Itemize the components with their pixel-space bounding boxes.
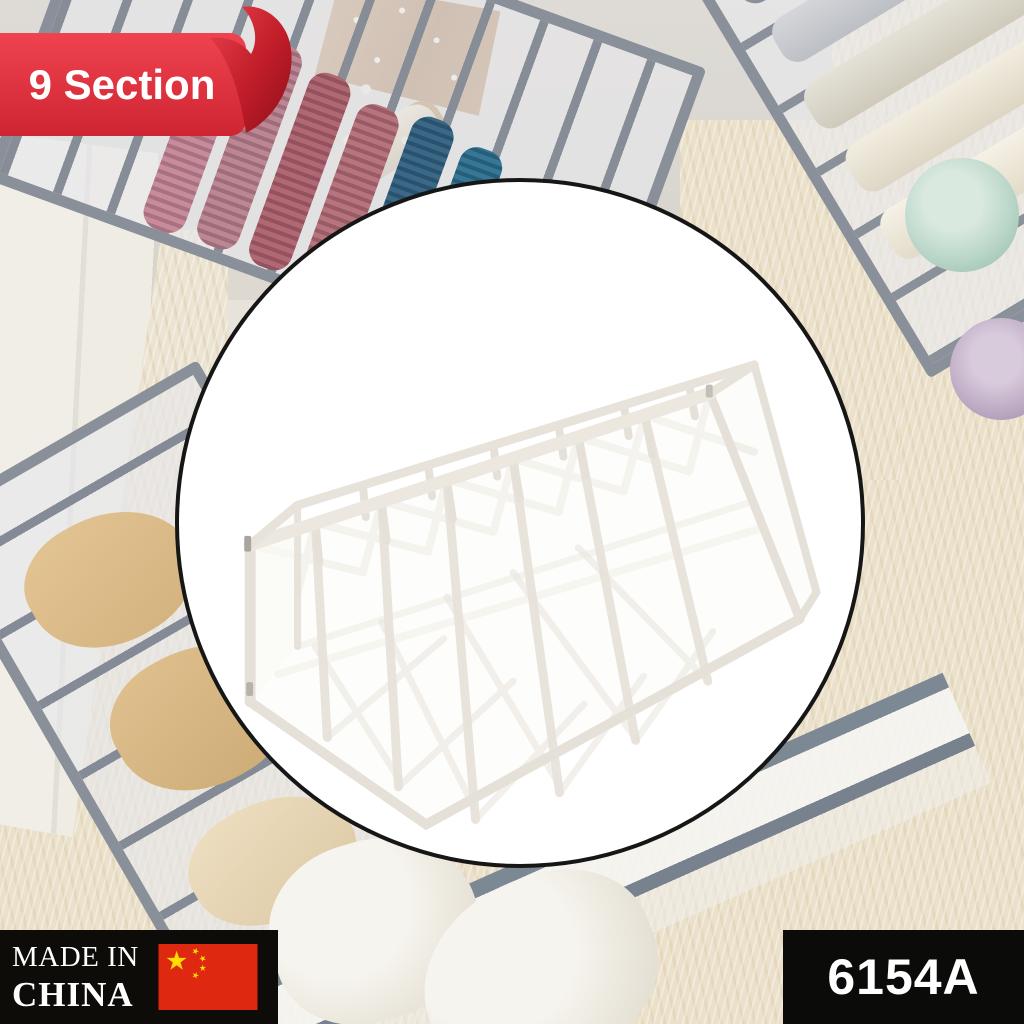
china-flag-icon: [154, 944, 262, 1010]
made-in-line: MADE IN: [12, 943, 152, 972]
made-in-china-badge: MADE IN CHINA: [0, 930, 278, 1024]
product-code: 6154A: [827, 948, 979, 1006]
made-in-china-text: MADE IN CHINA: [12, 943, 152, 1012]
product-inset-circle: [175, 178, 865, 868]
section-count-label: 9 Section: [12, 33, 232, 136]
section-count-ribbon: 9 Section: [0, 0, 312, 152]
product-image: 9 Section MADE IN CHINA 6154A: [0, 0, 1024, 1024]
product-code-badge: 6154A: [783, 930, 1024, 1024]
mesh-organizer-product: [179, 182, 861, 864]
china-line: CHINA: [12, 977, 152, 1012]
pompom-flower-mint: [905, 158, 1019, 272]
